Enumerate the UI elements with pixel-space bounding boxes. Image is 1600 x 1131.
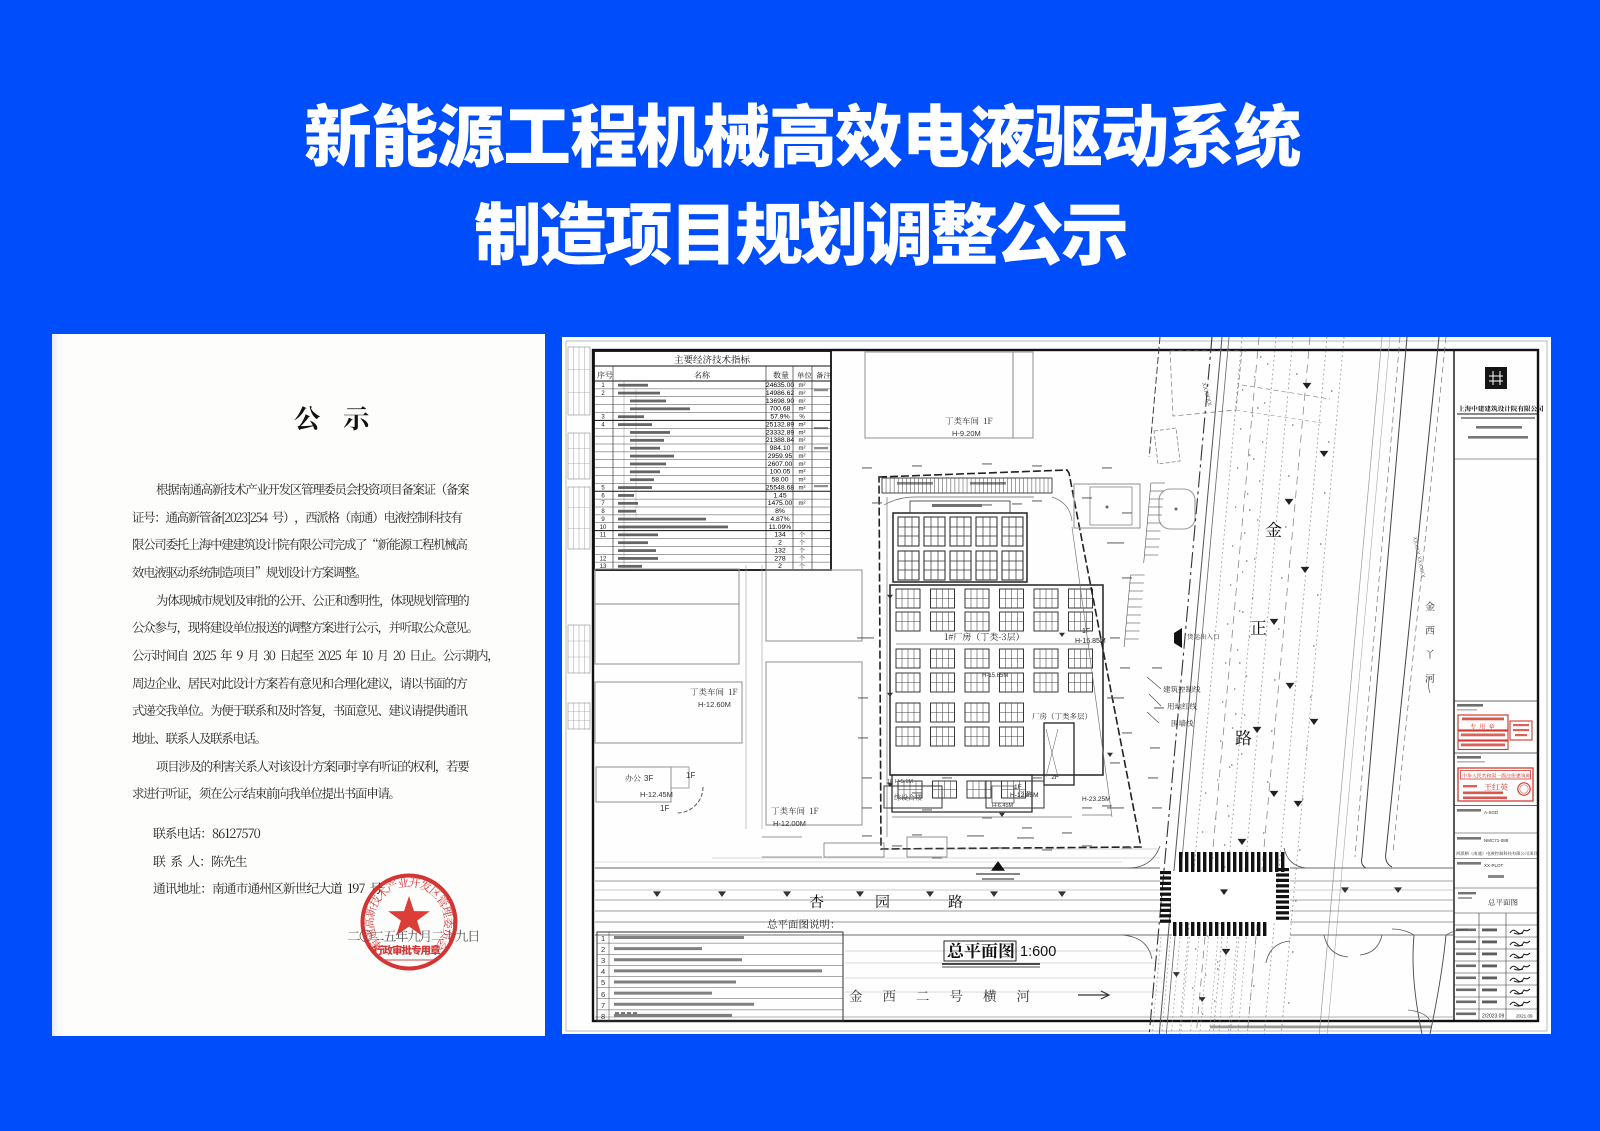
svg-text:%: %	[799, 415, 805, 421]
svg-text:m²: m²	[799, 501, 806, 507]
svg-text:1F: 1F	[660, 804, 669, 813]
svg-text:8%: 8%	[775, 508, 785, 515]
svg-text:100.05: 100.05	[770, 469, 791, 476]
svg-text:2/2023.09: 2/2023.09	[1482, 1014, 1504, 1020]
svg-text:58.00: 58.00	[771, 477, 788, 484]
svg-text:m²: m²	[799, 430, 806, 436]
svg-text:2: 2	[778, 540, 782, 547]
svg-text:2959.95: 2959.95	[768, 453, 793, 460]
svg-text:XX-PLOT: XX-PLOT	[1484, 863, 1504, 868]
svg-text:700.68: 700.68	[770, 406, 791, 413]
svg-text:m²: m²	[799, 423, 806, 429]
svg-text:H-12.60M: H-12.60M	[698, 700, 731, 709]
svg-text:NMC71-088: NMC71-088	[1484, 838, 1509, 843]
svg-text:A-SGD: A-SGD	[1484, 810, 1499, 815]
svg-text:1: 1	[601, 934, 605, 943]
svg-text:278: 278	[774, 555, 786, 562]
svg-text:m²: m²	[799, 485, 806, 491]
svg-text:11: 11	[600, 533, 607, 539]
svg-text:1475.00: 1475.00	[768, 500, 793, 507]
svg-text:1:600: 1:600	[1020, 944, 1056, 960]
svg-text:1.45: 1.45	[773, 492, 786, 499]
svg-text:5: 5	[601, 978, 605, 987]
svg-text:m²: m²	[799, 454, 806, 460]
svg-text:12: 12	[600, 556, 607, 562]
svg-text:132: 132	[774, 547, 786, 554]
svg-text:H-12.45M: H-12.45M	[640, 790, 673, 799]
svg-text:H-12.00M: H-12.00M	[773, 819, 806, 828]
svg-text:6: 6	[601, 990, 605, 999]
svg-text:134: 134	[774, 532, 786, 539]
svg-text:m²: m²	[799, 438, 806, 444]
svg-text:8: 8	[601, 1012, 605, 1021]
svg-text:m²: m²	[799, 478, 806, 484]
svg-text:7: 7	[601, 1001, 605, 1010]
svg-text:m²: m²	[799, 470, 806, 476]
svg-text:m²: m²	[799, 399, 806, 405]
svg-text:m²: m²	[799, 407, 806, 413]
svg-text:3F: 3F	[644, 774, 653, 783]
svg-text:57.9%: 57.9%	[770, 414, 789, 421]
svg-text:H-6.45M: H-6.45M	[992, 803, 1014, 809]
svg-text:3: 3	[601, 956, 605, 965]
svg-text:4.87%: 4.87%	[770, 516, 789, 523]
svg-text:2021.09: 2021.09	[1516, 1014, 1533, 1019]
svg-text:2F: 2F	[1051, 774, 1059, 781]
svg-text:m²: m²	[799, 391, 806, 397]
svg-text:23332.89: 23332.89	[766, 429, 795, 436]
svg-text:984.10: 984.10	[770, 445, 791, 452]
svg-text:4: 4	[601, 967, 605, 976]
svg-text:2607.00: 2607.00	[768, 461, 793, 468]
svg-text:H-9.20M: H-9.20M	[952, 429, 981, 438]
svg-text:25132.89: 25132.89	[766, 422, 795, 429]
svg-text:24635.00: 24635.00	[766, 382, 795, 389]
svg-text:2: 2	[601, 945, 605, 954]
svg-text:m²: m²	[799, 462, 806, 468]
svg-text:14986.62: 14986.62	[766, 390, 795, 397]
svg-text:13698.90: 13698.90	[766, 398, 795, 405]
svg-text:H-23.25M: H-23.25M	[1082, 796, 1111, 803]
svg-text:1F: 1F	[686, 771, 695, 780]
svg-text:11.09%: 11.09%	[769, 524, 792, 531]
svg-text:m²: m²	[799, 383, 806, 389]
svg-text:2: 2	[778, 563, 782, 570]
svg-text:m²: m²	[799, 446, 806, 452]
svg-text:H-15.85M: H-15.85M	[1075, 638, 1106, 645]
svg-text:H-15.65M: H-15.65M	[982, 673, 1008, 679]
svg-text:21388.84: 21388.84	[766, 437, 795, 444]
svg-text:25548.68: 25548.68	[766, 484, 795, 491]
svg-text:10: 10	[600, 525, 607, 531]
svg-text:1F: 1F	[1014, 784, 1022, 791]
